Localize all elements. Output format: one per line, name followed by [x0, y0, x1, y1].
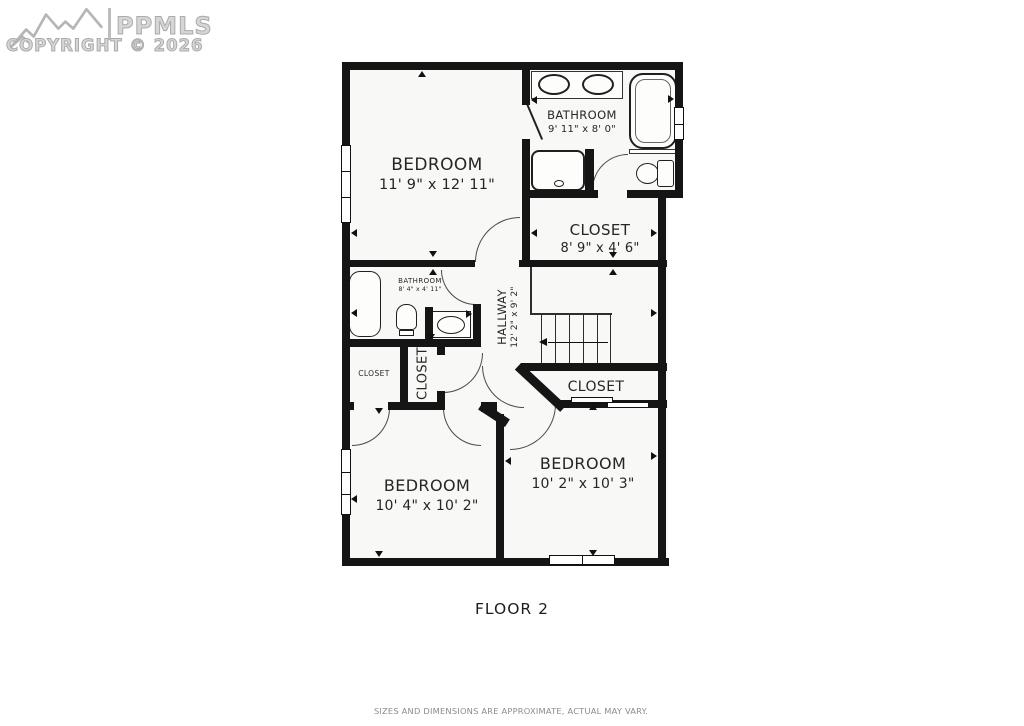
room-name: BEDROOM	[347, 476, 507, 497]
wall	[519, 260, 667, 267]
wall	[342, 402, 354, 410]
wall	[522, 70, 530, 105]
toilet-base	[399, 330, 414, 336]
dimension-marker	[375, 551, 383, 557]
stair-tread	[555, 315, 556, 363]
stair-arrow-head	[539, 338, 547, 346]
dimension-marker	[668, 95, 674, 103]
room-name: BATHROOM	[522, 108, 642, 123]
room-name: HALLWAY	[495, 267, 510, 367]
dimension-marker	[418, 71, 426, 77]
room-label-closet-understairs: CLOSET	[536, 378, 656, 396]
dimension-marker	[466, 310, 472, 318]
toilet-icon	[396, 304, 417, 330]
dimension-marker	[651, 309, 657, 317]
room-name: CLOSET	[536, 378, 656, 396]
room-label-closet-linen: CLOSET	[416, 342, 433, 406]
window-mullion	[342, 171, 350, 172]
wall	[522, 139, 530, 267]
room-name: BEDROOM	[357, 154, 517, 176]
dimension-marker	[351, 229, 357, 237]
wall	[342, 339, 481, 347]
room-label-bathroom-hall: BATHROOM 8' 4" x 4' 11"	[380, 276, 460, 295]
room-label-bedroom-master: BEDROOM 11' 9" x 12' 11"	[357, 154, 517, 195]
stair-tread	[597, 315, 598, 363]
window-mullion	[342, 197, 350, 198]
wall	[627, 190, 675, 198]
wall	[585, 149, 594, 198]
room-dims: 8' 4" x 4' 11"	[380, 286, 460, 295]
room-label-closet-walkin: CLOSET 8' 9" x 4' 6"	[540, 221, 660, 257]
room-name: BEDROOM	[503, 454, 663, 475]
room-dims: 11' 9" x 12' 11"	[357, 176, 517, 195]
room-dims: 12' 2" x 9' 2"	[510, 267, 522, 367]
dimension-marker	[589, 550, 597, 556]
room-name: CLOSET	[416, 342, 433, 406]
window-mullion	[582, 556, 583, 564]
room-name: CLOSET	[540, 221, 660, 241]
room-label-bedroom-right: BEDROOM 10' 2" x 10' 3"	[503, 454, 663, 493]
dimension-marker	[429, 251, 437, 257]
room-dims: 10' 2" x 10' 3"	[503, 475, 663, 493]
toilet-icon	[636, 163, 659, 184]
dimension-marker	[609, 269, 617, 275]
window-mullion	[675, 124, 683, 125]
dimension-marker	[429, 269, 437, 275]
dimension-marker	[427, 334, 435, 340]
window	[549, 555, 615, 565]
bathtub-icon	[349, 271, 381, 337]
room-name: CLOSET	[344, 369, 404, 379]
disclaimer-text: SIZES AND DIMENSIONS ARE APPROXIMATE, AC…	[331, 706, 691, 716]
floor-plan-page: PPMLS COPYRIGHT © 2026	[0, 0, 1024, 726]
room-dims: 9' 11" x 8' 0"	[522, 123, 642, 136]
watermark: PPMLS COPYRIGHT © 2026	[0, 0, 220, 64]
sink-icon	[437, 316, 465, 334]
wall	[521, 363, 667, 371]
room-label-closet-small: CLOSET	[344, 369, 404, 379]
sink-icon	[582, 74, 614, 95]
wall	[342, 558, 669, 566]
room-dims: 8' 9" x 4' 6"	[540, 241, 660, 258]
tub-ledge	[629, 149, 677, 154]
window	[341, 145, 351, 223]
room-dims: 10' 4" x 10' 2"	[347, 497, 507, 515]
dimension-marker	[531, 96, 537, 104]
watermark-copyright: COPYRIGHT © 2026	[6, 36, 204, 55]
window	[674, 107, 684, 140]
toilet-tank	[657, 160, 674, 187]
sink-icon	[538, 74, 570, 95]
window-mullion	[342, 472, 350, 473]
room-label-bathroom-main: BATHROOM 9' 11" x 8' 0"	[522, 108, 642, 136]
room-name: BATHROOM	[380, 276, 460, 286]
wall	[342, 62, 683, 70]
dimension-marker	[351, 309, 357, 317]
dimension-marker	[531, 229, 537, 237]
stair-arrow-line	[548, 342, 608, 343]
dimension-marker	[375, 408, 383, 414]
room-label-bedroom-left: BEDROOM 10' 4" x 10' 2"	[347, 476, 507, 515]
dimension-marker	[589, 404, 597, 410]
room-label-hallway: HALLWAY 12' 2" x 9' 2"	[495, 267, 531, 367]
wall	[342, 260, 475, 267]
sliding-door	[607, 402, 649, 408]
stair-tread	[583, 315, 584, 363]
stair-tread	[610, 315, 611, 363]
wall	[437, 339, 445, 355]
stair-tread	[569, 315, 570, 363]
shower-drain	[554, 180, 564, 187]
floor-title: FLOOR 2	[432, 600, 592, 618]
